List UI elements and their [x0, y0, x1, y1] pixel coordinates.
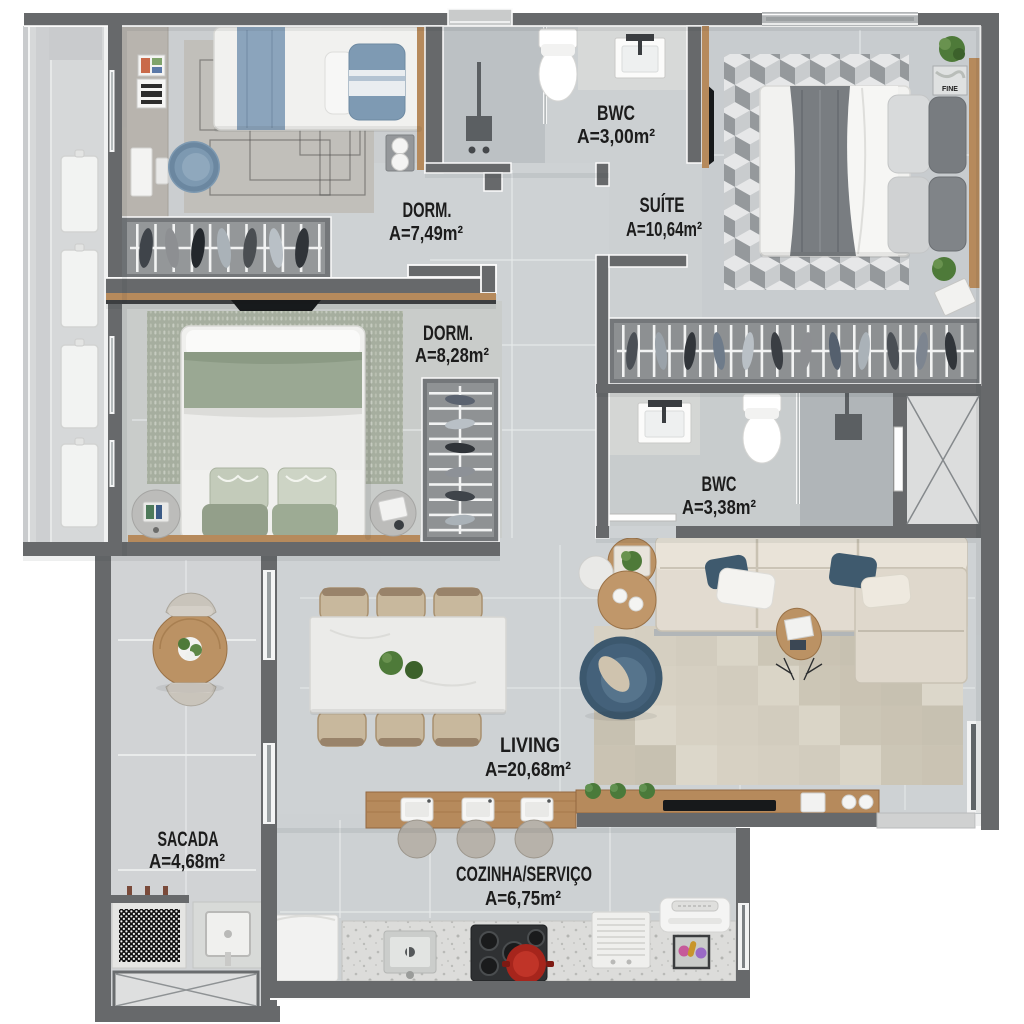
svg-text:A=3,38m²: A=3,38m²	[682, 497, 756, 519]
svg-text:A=6,75m²: A=6,75m²	[485, 888, 561, 910]
svg-text:BWC: BWC	[702, 473, 737, 496]
svg-text:COZINHA/SERVIÇO: COZINHA/SERVIÇO	[456, 863, 592, 886]
svg-text:A=8,28m²: A=8,28m²	[415, 345, 489, 367]
svg-text:A=4,68m²: A=4,68m²	[149, 851, 225, 873]
svg-text:A=7,49m²: A=7,49m²	[389, 223, 463, 245]
svg-text:SUÍTE: SUÍTE	[640, 194, 685, 217]
svg-text:A=20,68m²: A=20,68m²	[485, 759, 571, 781]
svg-text:A=3,00m²: A=3,00m²	[577, 126, 655, 148]
svg-text:DORM.: DORM.	[403, 199, 452, 222]
svg-text:BWC: BWC	[597, 102, 635, 125]
svg-text:FINE: FINE	[942, 86, 958, 93]
svg-text:DORM.: DORM.	[423, 322, 473, 345]
svg-text:LIVING: LIVING	[500, 734, 560, 757]
svg-text:SACADA: SACADA	[158, 828, 219, 851]
svg-text:A=10,64m²: A=10,64m²	[626, 219, 702, 241]
